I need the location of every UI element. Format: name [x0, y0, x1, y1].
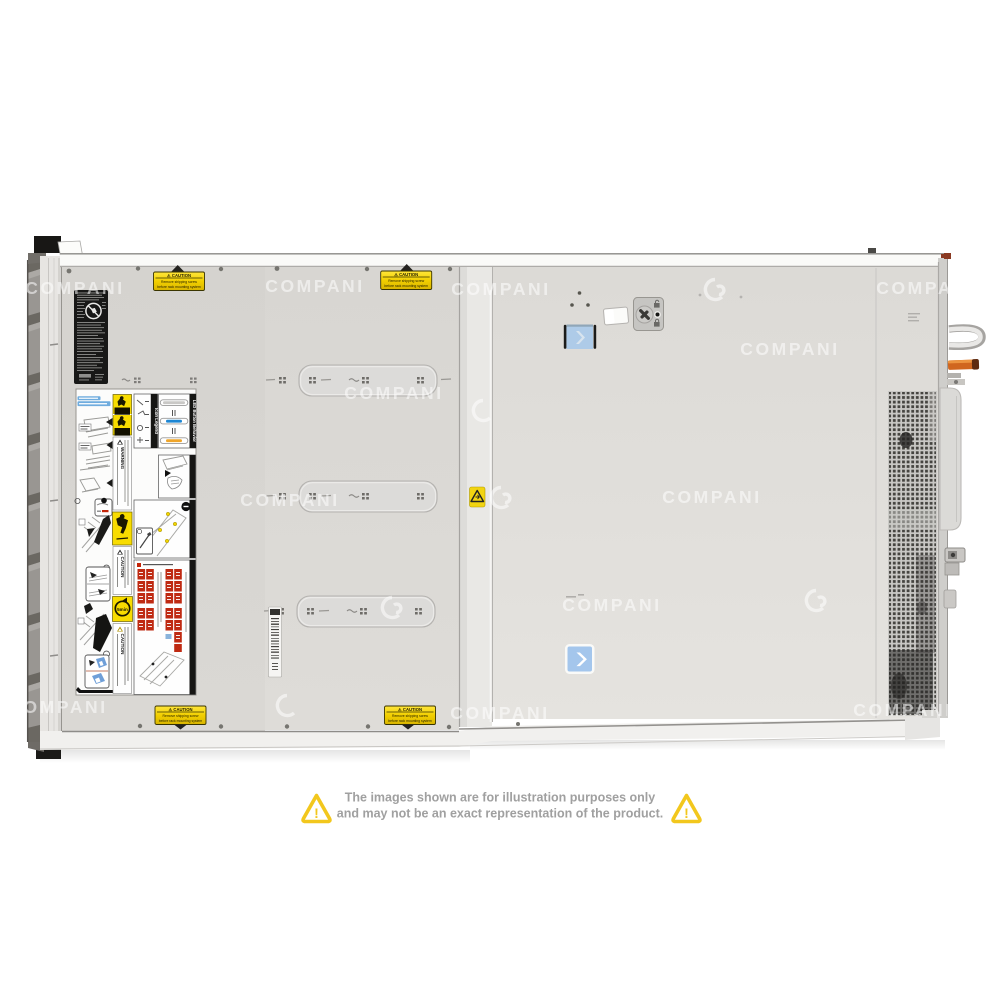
svg-text:LED Button Behavior: LED Button Behavior — [192, 400, 197, 442]
svg-text:5min: 5min — [117, 607, 128, 612]
svg-text:COMPANI: COMPANI — [265, 276, 365, 296]
svg-text:The images shown are for illus: The images shown are for illustration pu… — [345, 791, 656, 805]
svg-text:and may not be an exact repres: and may not be an exact representation o… — [337, 807, 663, 821]
svg-text:COMPANI: COMPANI — [662, 487, 762, 507]
svg-text:CAUTION: CAUTION — [120, 557, 125, 579]
svg-text:CAUTION: CAUTION — [120, 634, 125, 656]
svg-text:Icon Legend: Icon Legend — [154, 408, 159, 434]
svg-text:COMPANI: COMPANI — [562, 595, 662, 615]
svg-text:COMPANI: COMPANI — [740, 339, 840, 359]
svg-text:COMPANI: COMPANI — [853, 700, 953, 720]
svg-text:COMPANI: COMPANI — [240, 490, 340, 510]
svg-text:COMPANI: COMPANI — [344, 383, 444, 403]
svg-text:COMPANI: COMPANI — [450, 703, 550, 723]
svg-text:COMPANI: COMPANI — [451, 279, 551, 299]
svg-text:WARNING: WARNING — [120, 447, 125, 470]
svg-text:!: ! — [684, 805, 689, 821]
svg-text:COMPANI: COMPANI — [25, 278, 125, 298]
svg-text:!: ! — [314, 805, 319, 821]
